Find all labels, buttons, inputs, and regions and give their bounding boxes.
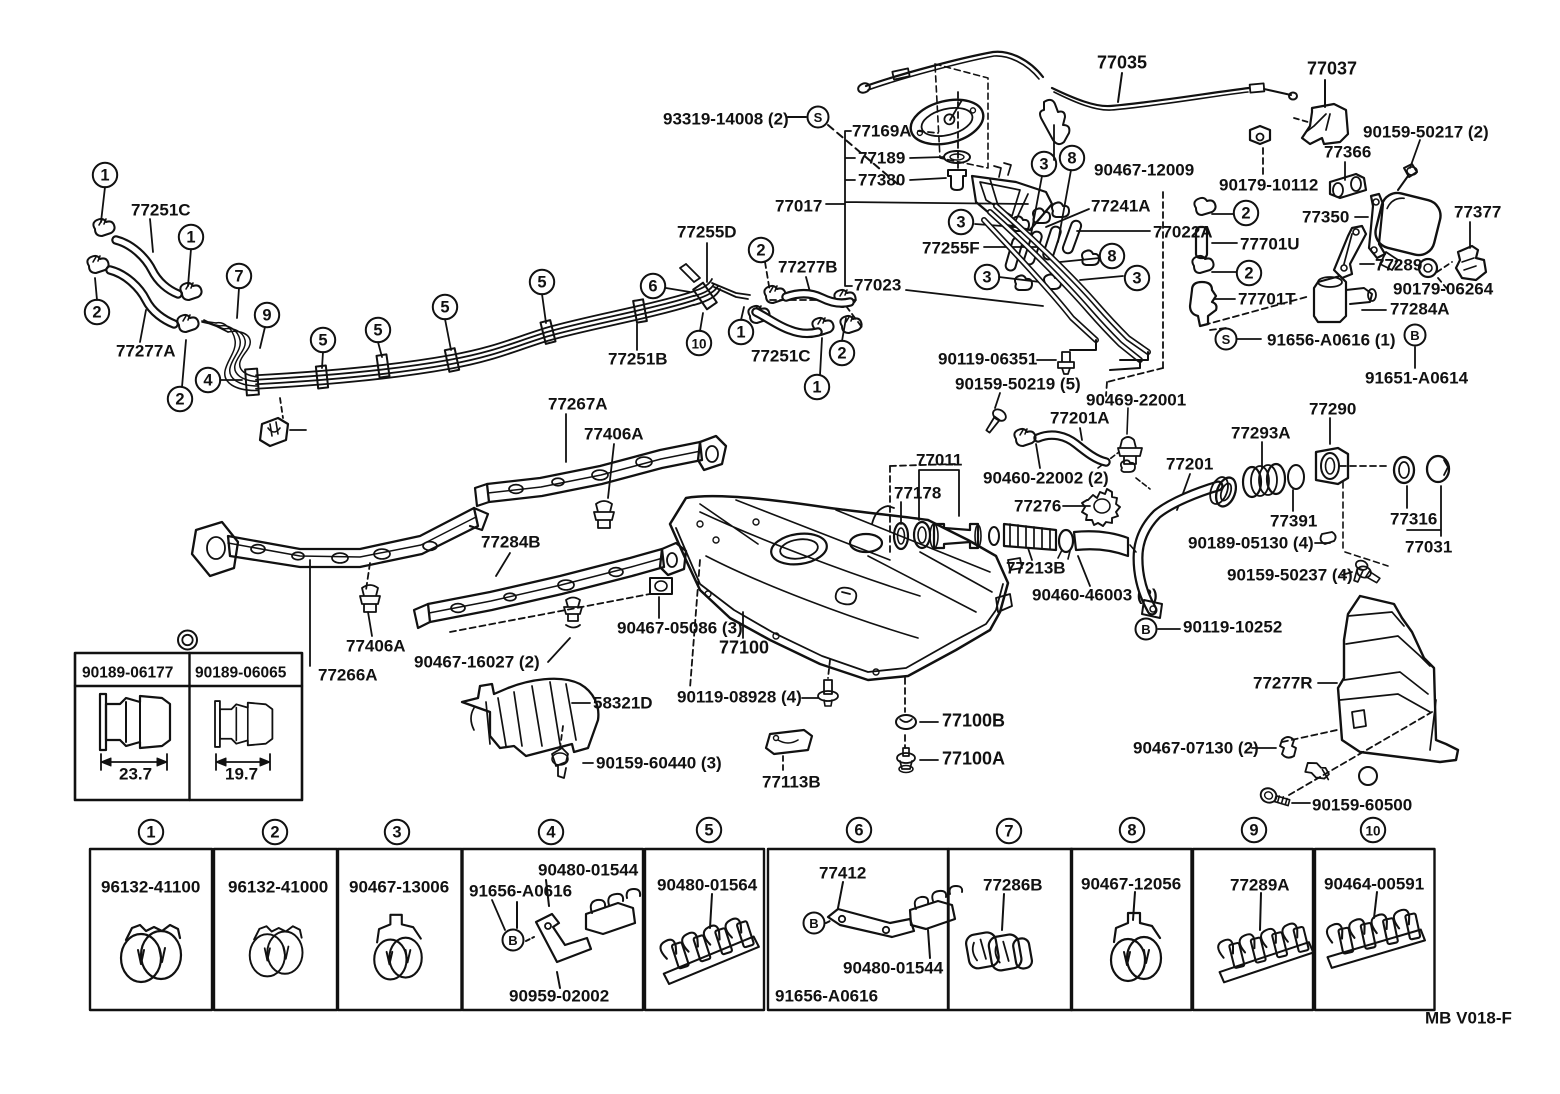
svg-text:77255D: 77255D <box>677 223 737 242</box>
svg-text:2: 2 <box>175 391 184 409</box>
svg-text:77213B: 77213B <box>1006 559 1066 578</box>
svg-text:77266A: 77266A <box>318 666 378 685</box>
svg-text:77391: 77391 <box>1270 512 1317 531</box>
svg-text:90159-60500: 90159-60500 <box>1312 796 1412 815</box>
svg-text:77701T: 77701T <box>1238 290 1296 309</box>
svg-text:2: 2 <box>1241 205 1250 223</box>
svg-text:77316: 77316 <box>1390 510 1437 529</box>
svg-text:77189: 77189 <box>858 149 905 168</box>
svg-text:77178: 77178 <box>894 484 941 503</box>
svg-text:90189-06177: 90189-06177 <box>82 665 173 682</box>
svg-text:90480-01544: 90480-01544 <box>843 959 944 978</box>
svg-text:90467-12009: 90467-12009 <box>1094 161 1194 180</box>
svg-text:90119-10252: 90119-10252 <box>1183 618 1282 637</box>
svg-text:91656-A0616: 91656-A0616 <box>775 987 878 1006</box>
svg-text:77277B: 77277B <box>778 258 838 277</box>
svg-text:7: 7 <box>234 268 243 286</box>
svg-text:3: 3 <box>1132 270 1141 288</box>
svg-text:8: 8 <box>1107 248 1116 266</box>
svg-text:B: B <box>809 916 818 931</box>
svg-text:77251C: 77251C <box>751 347 811 366</box>
svg-text:1: 1 <box>186 229 195 247</box>
svg-text:90159-50217 (2): 90159-50217 (2) <box>1363 123 1489 142</box>
svg-text:77201A: 77201A <box>1050 409 1110 428</box>
svg-text:90467-12056: 90467-12056 <box>1081 875 1181 894</box>
svg-text:1: 1 <box>100 167 109 185</box>
svg-text:5: 5 <box>440 299 449 317</box>
svg-text:77100A: 77100A <box>942 749 1005 769</box>
svg-text:2: 2 <box>1244 265 1253 283</box>
svg-text:3: 3 <box>392 824 401 842</box>
svg-text:77201: 77201 <box>1166 455 1213 474</box>
svg-text:77037: 77037 <box>1307 59 1357 79</box>
svg-text:90179-10112: 90179-10112 <box>1219 176 1318 195</box>
svg-text:77100B: 77100B <box>942 711 1005 731</box>
svg-text:77277A: 77277A <box>116 342 176 361</box>
svg-text:90469-22001: 90469-22001 <box>1086 391 1186 410</box>
svg-text:77100: 77100 <box>719 638 769 658</box>
svg-text:S: S <box>814 110 823 125</box>
svg-text:8: 8 <box>1067 150 1076 168</box>
svg-text:77113B: 77113B <box>762 773 821 792</box>
svg-text:19.7: 19.7 <box>225 765 258 784</box>
svg-text:9: 9 <box>262 307 271 325</box>
svg-text:7: 7 <box>1004 823 1013 841</box>
svg-text:77255F: 77255F <box>922 239 980 258</box>
svg-text:77293A: 77293A <box>1231 424 1291 443</box>
svg-text:90119-08928 (4): 90119-08928 (4) <box>677 688 802 707</box>
svg-text:3: 3 <box>982 269 991 287</box>
svg-text:90467-07130 (2): 90467-07130 (2) <box>1133 739 1259 758</box>
svg-text:B: B <box>1410 328 1419 343</box>
svg-text:B: B <box>508 933 517 948</box>
svg-text:77289A: 77289A <box>1230 876 1290 895</box>
svg-text:77031: 77031 <box>1405 538 1452 557</box>
svg-text:77017: 77017 <box>775 197 822 216</box>
svg-text:77023: 77023 <box>854 276 901 295</box>
svg-text:77350: 77350 <box>1302 208 1349 227</box>
svg-text:91656-A0616: 91656-A0616 <box>469 882 572 901</box>
svg-text:77022A: 77022A <box>1153 223 1213 242</box>
svg-text:77366: 77366 <box>1324 143 1371 162</box>
svg-text:77169A: 77169A <box>852 122 912 141</box>
svg-text:77251B: 77251B <box>608 350 668 369</box>
svg-text:4: 4 <box>203 372 213 390</box>
svg-text:5: 5 <box>704 822 713 840</box>
svg-text:93319-14008 (2): 93319-14008 (2) <box>663 110 789 129</box>
svg-text:77276: 77276 <box>1014 497 1061 516</box>
svg-text:77284B: 77284B <box>481 533 541 552</box>
svg-text:77284A: 77284A <box>1390 300 1450 319</box>
svg-text:23.7: 23.7 <box>119 765 152 784</box>
svg-text:2: 2 <box>270 824 279 842</box>
svg-text:10: 10 <box>1365 824 1380 839</box>
svg-text:90467-16027 (2): 90467-16027 (2) <box>414 653 540 672</box>
svg-text:1: 1 <box>812 379 821 397</box>
svg-text:90467-13006: 90467-13006 <box>349 878 449 897</box>
svg-text:77290: 77290 <box>1309 400 1356 419</box>
svg-text:6: 6 <box>648 278 657 296</box>
svg-text:77251C: 77251C <box>131 201 191 220</box>
svg-text:77406A: 77406A <box>346 637 406 656</box>
svg-text:90159-60440 (3): 90159-60440 (3) <box>596 754 722 773</box>
svg-text:90179-06264: 90179-06264 <box>1393 280 1494 299</box>
svg-text:MB V018-F: MB V018-F <box>1425 1009 1512 1028</box>
svg-text:91656-A0616 (1): 91656-A0616 (1) <box>1267 331 1396 350</box>
svg-text:1: 1 <box>146 824 155 842</box>
svg-text:2: 2 <box>837 345 846 363</box>
svg-text:90959-02002: 90959-02002 <box>509 987 609 1006</box>
svg-text:B: B <box>1141 622 1150 637</box>
svg-text:58321D: 58321D <box>593 694 653 713</box>
svg-text:77286B: 77286B <box>983 876 1043 895</box>
svg-text:77380: 77380 <box>858 171 905 190</box>
svg-text:4: 4 <box>546 824 556 842</box>
svg-text:90480-01544: 90480-01544 <box>538 861 639 880</box>
svg-text:77406A: 77406A <box>584 425 644 444</box>
svg-text:77267A: 77267A <box>548 395 608 414</box>
svg-text:5: 5 <box>318 332 327 350</box>
svg-text:1: 1 <box>736 324 745 342</box>
svg-text:5: 5 <box>537 274 546 292</box>
svg-text:6: 6 <box>854 822 863 840</box>
svg-text:90460-22002 (2): 90460-22002 (2) <box>983 469 1109 488</box>
svg-text:77377: 77377 <box>1454 203 1501 222</box>
svg-text:96132-41000: 96132-41000 <box>228 878 328 897</box>
svg-text:77277R: 77277R <box>1253 674 1313 693</box>
svg-text:90159-50219 (5): 90159-50219 (5) <box>955 375 1081 394</box>
svg-text:2: 2 <box>756 242 765 260</box>
svg-text:9: 9 <box>1249 822 1258 840</box>
svg-text:91651-A0614: 91651-A0614 <box>1365 369 1469 388</box>
svg-text:90119-06351: 90119-06351 <box>938 350 1037 369</box>
svg-text:90189-06065: 90189-06065 <box>195 665 287 682</box>
svg-text:96132-41100: 96132-41100 <box>101 878 200 897</box>
svg-text:90480-01564: 90480-01564 <box>657 876 758 895</box>
svg-text:3: 3 <box>1039 156 1048 174</box>
svg-text:90159-50237 (4): 90159-50237 (4) <box>1227 566 1353 585</box>
svg-text:3: 3 <box>956 214 965 232</box>
svg-text:90467-05086 (3): 90467-05086 (3) <box>617 619 743 638</box>
svg-text:8: 8 <box>1127 822 1136 840</box>
svg-text:5: 5 <box>373 322 382 340</box>
svg-text:77701U: 77701U <box>1240 235 1300 254</box>
svg-text:77241A: 77241A <box>1091 197 1151 216</box>
svg-text:10: 10 <box>691 337 706 352</box>
svg-text:S: S <box>1222 332 1231 347</box>
svg-text:90189-05130 (4): 90189-05130 (4) <box>1188 534 1314 553</box>
svg-text:77412: 77412 <box>819 864 866 883</box>
svg-text:2: 2 <box>92 304 101 322</box>
svg-text:90464-00591: 90464-00591 <box>1324 875 1424 894</box>
svg-text:77035: 77035 <box>1097 53 1147 73</box>
svg-text:77011: 77011 <box>916 451 962 470</box>
